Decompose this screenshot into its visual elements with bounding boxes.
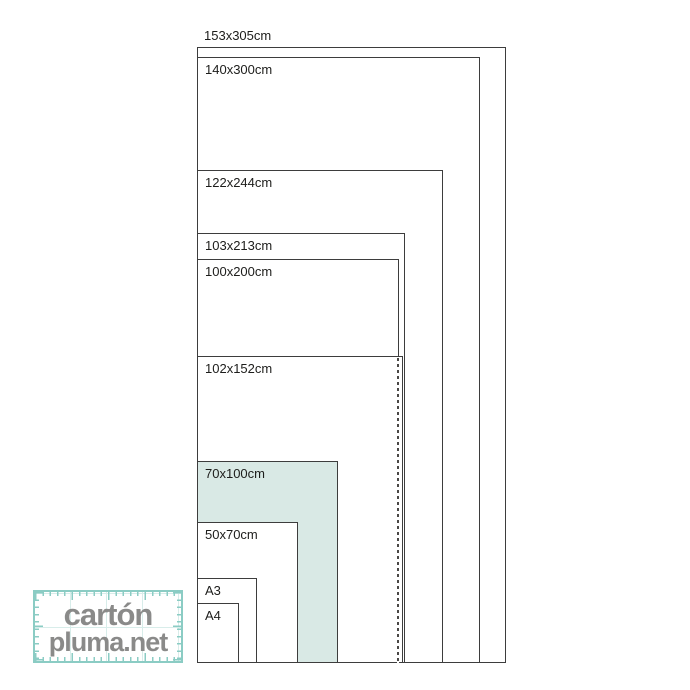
logo-line1: cartón	[64, 599, 153, 630]
size-label-102x152cm: 102x152cm	[205, 362, 272, 376]
size-label-70x100cm: 70x100cm	[205, 467, 265, 481]
logo-text: cartón pluma.net	[35, 592, 181, 661]
hidden-edge-100x200cm	[397, 358, 399, 663]
size-rect-A4: A4	[197, 603, 239, 663]
size-label-A3: A3	[205, 584, 221, 598]
size-label-153x305cm: 153x305cm	[204, 29, 271, 43]
size-label-100x200cm: 100x200cm	[205, 265, 272, 279]
cartonpluma-logo: cartón pluma.net	[33, 590, 183, 663]
logo-line2: pluma.net	[49, 630, 168, 655]
size-label-103x213cm: 103x213cm	[205, 239, 272, 253]
size-label-122x244cm: 122x244cm	[205, 176, 272, 190]
size-label-140x300cm: 140x300cm	[205, 63, 272, 77]
size-label-50x70cm: 50x70cm	[205, 528, 258, 542]
size-label-A4: A4	[205, 609, 221, 623]
size-comparison-diagram: 153x305cm140x300cm122x244cm103x213cm100x…	[0, 0, 690, 690]
